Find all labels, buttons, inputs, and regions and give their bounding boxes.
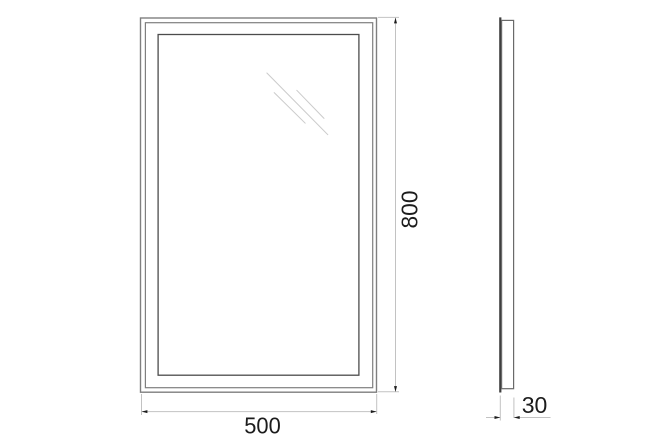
svg-text:30: 30 [522, 392, 548, 418]
svg-text:800: 800 [397, 191, 423, 229]
svg-text:500: 500 [244, 413, 281, 439]
